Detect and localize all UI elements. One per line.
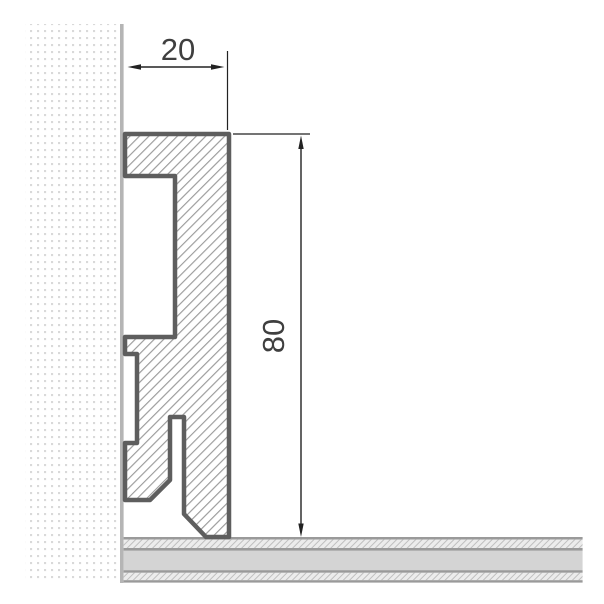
floor-bottom-line (124, 580, 583, 582)
floor-core-strip (124, 551, 583, 570)
wall (25, 24, 124, 583)
height-arrow-top (298, 136, 303, 150)
skirting-profile-section (125, 134, 229, 537)
width-arrow-left (128, 64, 142, 69)
floor-upper-hatch-strip (124, 540, 583, 548)
drawing-svg: 20 80 (0, 0, 604, 604)
floor (124, 537, 583, 583)
wall-stipple-area (25, 24, 120, 583)
technical-drawing: 20 80 (0, 0, 604, 604)
height-dimension-label: 80 (256, 319, 291, 353)
floor-lower-hatch-strip (124, 573, 583, 580)
floor-line-2 (124, 548, 583, 551)
floor-line-3 (124, 570, 583, 573)
width-dimension-label: 20 (161, 32, 195, 67)
height-arrow-bottom (298, 524, 303, 538)
floor-top-line (124, 537, 583, 540)
width-arrow-right (211, 64, 225, 69)
